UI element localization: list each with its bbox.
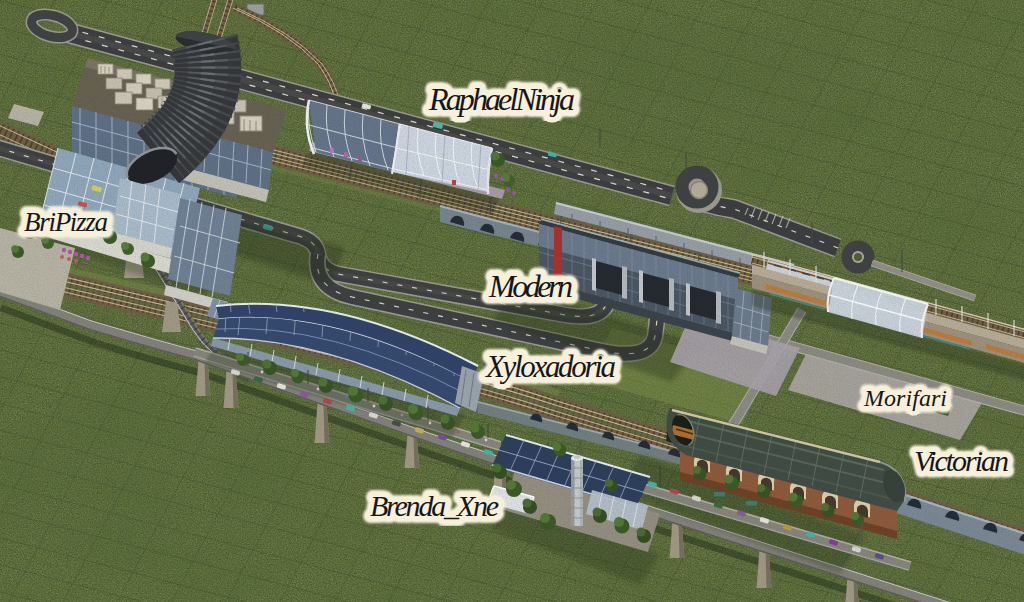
svg-text:Xyloxadoria: Xyloxadoria: [484, 349, 616, 384]
svg-text:BriPizza: BriPizza: [24, 207, 108, 237]
svg-text:Modern: Modern: [488, 268, 573, 304]
svg-text:Morifari: Morifari: [863, 385, 947, 411]
svg-text:Victorian: Victorian: [914, 444, 1009, 477]
svg-text:RaphaelNinja: RaphaelNinja: [428, 81, 575, 117]
svg-text:Brenda_Xne: Brenda_Xne: [370, 489, 499, 522]
